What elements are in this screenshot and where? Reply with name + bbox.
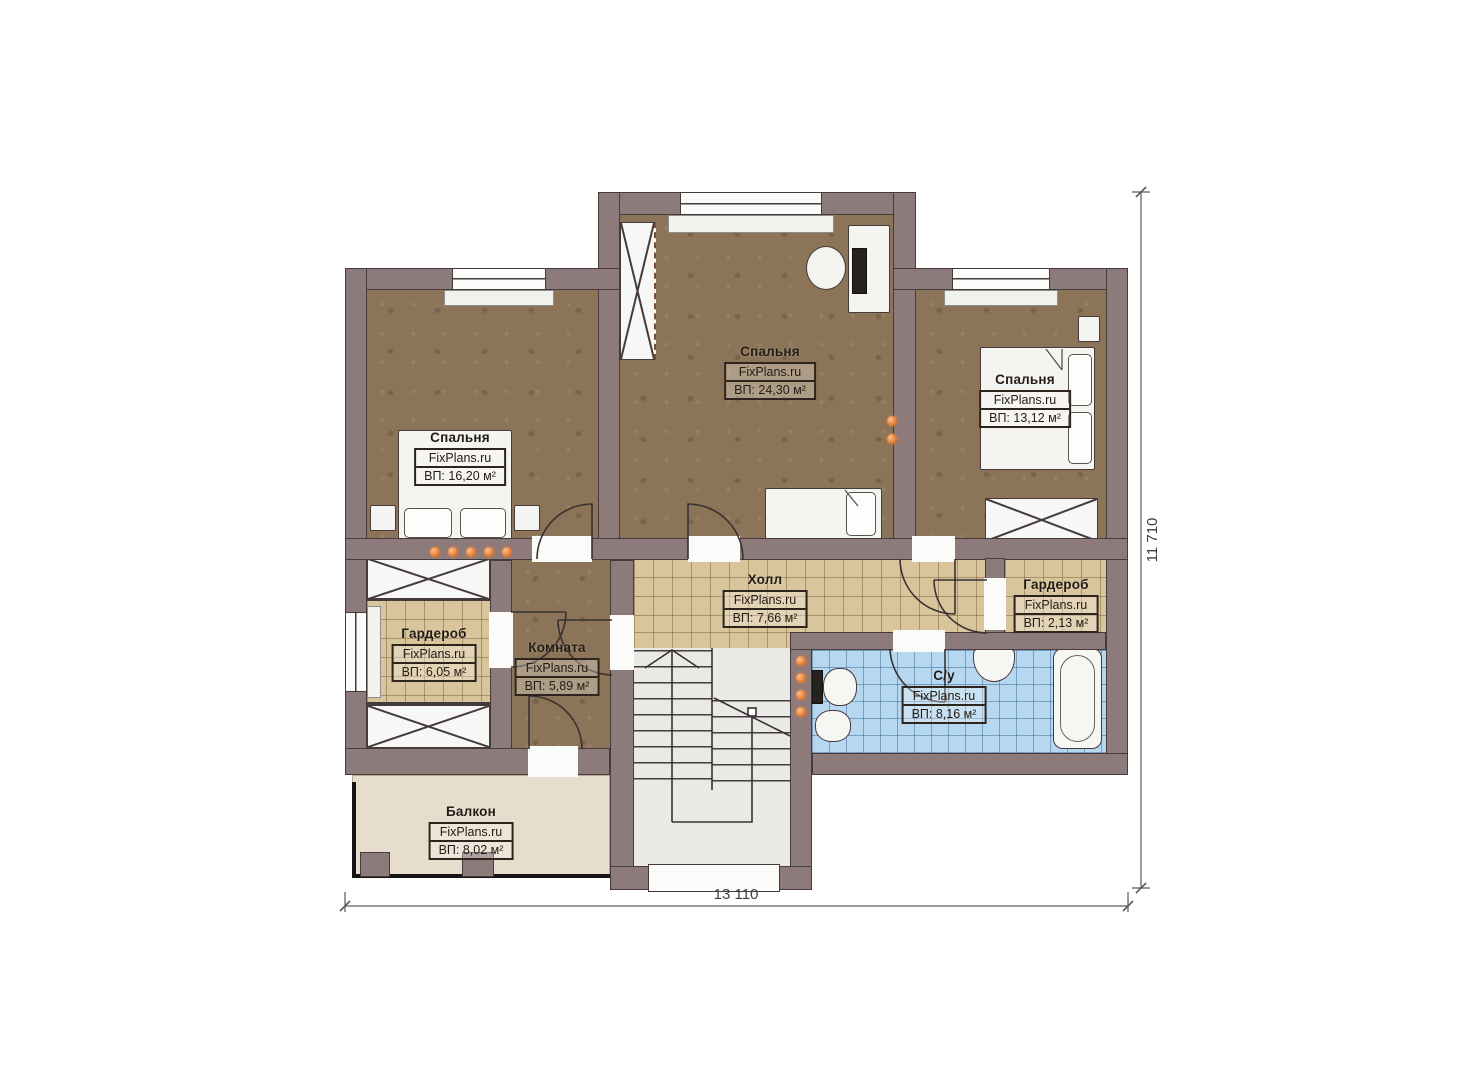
- wall: [790, 632, 1106, 650]
- area-text: ВП: 8,02 м²: [431, 840, 512, 858]
- brand-text: FixPlans.ru: [517, 660, 598, 676]
- hall-floor-ext: [634, 632, 790, 648]
- room-label-bedroom-right: Спальня FixPlans.ru ВП: 13,12 м²: [979, 372, 1071, 428]
- door-opening: [528, 746, 578, 777]
- nightstand: [514, 505, 540, 531]
- room-label-bedroom-top: Спальня FixPlans.ru ВП: 24,30 м²: [724, 344, 816, 400]
- door-opening: [610, 615, 634, 670]
- brand-text: FixPlans.ru: [726, 364, 814, 380]
- wall: [598, 192, 620, 560]
- area-text: ВП: 8,16 м²: [904, 704, 985, 722]
- room-label-hall: Холл FixPlans.ru ВП: 7,66 м²: [723, 572, 808, 628]
- room-name: Комната: [515, 640, 600, 655]
- brand-text: FixPlans.ru: [394, 646, 475, 662]
- brand-text: FixPlans.ru: [416, 450, 504, 466]
- room-label-box: FixPlans.ru ВП: 24,30 м²: [724, 362, 816, 400]
- room-label-box: FixPlans.ru ВП: 5,89 м²: [515, 658, 600, 696]
- brand-text: FixPlans.ru: [1016, 597, 1097, 613]
- nightstand: [1078, 316, 1100, 342]
- radiator-dot: [484, 547, 494, 557]
- partition-line: [367, 702, 490, 705]
- area-text: ВП: 6,05 м²: [394, 662, 475, 680]
- room-name: Спальня: [979, 372, 1071, 387]
- dimension-height-label: 11 710: [1144, 518, 1161, 563]
- toilet: [823, 668, 857, 706]
- room-label-room: Комната FixPlans.ru ВП: 5,89 м²: [515, 640, 600, 696]
- room-label-wardrobe-right: Гардероб FixPlans.ru ВП: 2,13 м²: [1014, 577, 1099, 633]
- room-label-balcony: Балкон FixPlans.ru ВП: 8,02 м²: [429, 804, 514, 860]
- room-label-box: FixPlans.ru ВП: 6,05 м²: [392, 644, 477, 682]
- room-label-box: FixPlans.ru ВП: 2,13 м²: [1014, 595, 1099, 633]
- radiator-dot: [430, 547, 440, 557]
- wall: [893, 192, 916, 560]
- pillow: [404, 508, 452, 538]
- room-label-box: FixPlans.ru ВП: 8,16 м²: [902, 686, 987, 724]
- wall: [345, 268, 367, 775]
- radiator: [796, 656, 806, 717]
- hall-floor: [634, 558, 985, 634]
- room-label-box: FixPlans.ru ВП: 7,66 м²: [723, 590, 808, 628]
- window-sill: [367, 606, 381, 698]
- pillow: [846, 492, 876, 536]
- brand-text: FixPlans.ru: [981, 392, 1069, 408]
- room-name: Спальня: [724, 344, 816, 359]
- radiator-dot: [796, 673, 806, 683]
- stair-flight-right: [712, 700, 790, 790]
- radiator: [430, 547, 512, 557]
- pillow: [1068, 412, 1092, 464]
- nightstand: [370, 505, 396, 531]
- brand-text: FixPlans.ru: [725, 592, 806, 608]
- door-opening: [532, 536, 592, 562]
- partition-line: [367, 598, 490, 601]
- radiator-dot: [466, 547, 476, 557]
- radiator-dot: [796, 656, 806, 666]
- bidet: [815, 710, 851, 742]
- area-text: ВП: 2,13 м²: [1016, 613, 1097, 631]
- radiator-dot: [887, 434, 897, 444]
- room-name: Гардероб: [392, 626, 477, 641]
- radiator-dot: [796, 707, 806, 717]
- radiator-dot: [448, 547, 458, 557]
- door-opening: [912, 536, 955, 562]
- room-label-bedroom-left: Спальня FixPlans.ru ВП: 16,20 м²: [414, 430, 506, 486]
- door-opening: [489, 612, 513, 668]
- room-label-wardrobe-left: Гардероб FixPlans.ru ВП: 6,05 м²: [392, 626, 477, 682]
- stair-flight-left: [634, 650, 712, 790]
- door-opening: [688, 536, 740, 562]
- radiator-dot: [887, 416, 897, 426]
- pillow: [1068, 354, 1092, 406]
- area-text: ВП: 5,89 м²: [517, 676, 598, 694]
- dimension-width-label: 13 110: [714, 886, 759, 903]
- room-label-box: FixPlans.ru ВП: 16,20 м²: [414, 448, 506, 486]
- wall: [610, 560, 634, 890]
- radiator-dot: [796, 690, 806, 700]
- radiator: [887, 416, 897, 444]
- toilet-tank: [812, 670, 823, 704]
- window: [345, 612, 367, 692]
- window: [680, 192, 822, 215]
- area-text: ВП: 24,30 м²: [726, 380, 814, 398]
- balcony-railing: [352, 782, 356, 878]
- window-sill: [944, 290, 1058, 306]
- door-opening: [984, 578, 1006, 630]
- window-sill: [668, 215, 834, 233]
- pillow: [460, 508, 506, 538]
- room-name: С/у: [902, 668, 987, 683]
- room-name: Гардероб: [1014, 577, 1099, 592]
- room-name: Спальня: [414, 430, 506, 445]
- room-label-box: FixPlans.ru ВП: 13,12 м²: [979, 390, 1071, 428]
- closet-cabinet: [367, 558, 490, 600]
- wardrobe-cabinet: [620, 222, 656, 360]
- area-text: ВП: 16,20 м²: [416, 466, 504, 484]
- room-label-box: FixPlans.ru ВП: 8,02 м²: [429, 822, 514, 860]
- balcony-post: [360, 852, 390, 877]
- floor-plan: Спальня FixPlans.ru ВП: 24,30 м² Спальня…: [0, 0, 1473, 1080]
- area-text: ВП: 7,66 м²: [725, 608, 806, 626]
- area-text: ВП: 13,12 м²: [981, 408, 1069, 426]
- brand-text: FixPlans.ru: [904, 688, 985, 704]
- window: [452, 268, 546, 290]
- wall: [1106, 268, 1128, 775]
- room-name: Холл: [723, 572, 808, 587]
- brand-text: FixPlans.ru: [431, 824, 512, 840]
- window-sill: [444, 290, 554, 306]
- closet-cabinet: [367, 705, 490, 748]
- wardrobe-cabinet: [985, 498, 1098, 542]
- wall: [812, 753, 1128, 775]
- window: [952, 268, 1050, 290]
- office-chair: [806, 246, 846, 290]
- room-label-bathroom: С/у FixPlans.ru ВП: 8,16 м²: [902, 668, 987, 724]
- bathtub: [1053, 648, 1102, 749]
- room-name: Балкон: [429, 804, 514, 819]
- monitor: [852, 248, 867, 294]
- door-opening: [893, 630, 945, 652]
- radiator-dot: [502, 547, 512, 557]
